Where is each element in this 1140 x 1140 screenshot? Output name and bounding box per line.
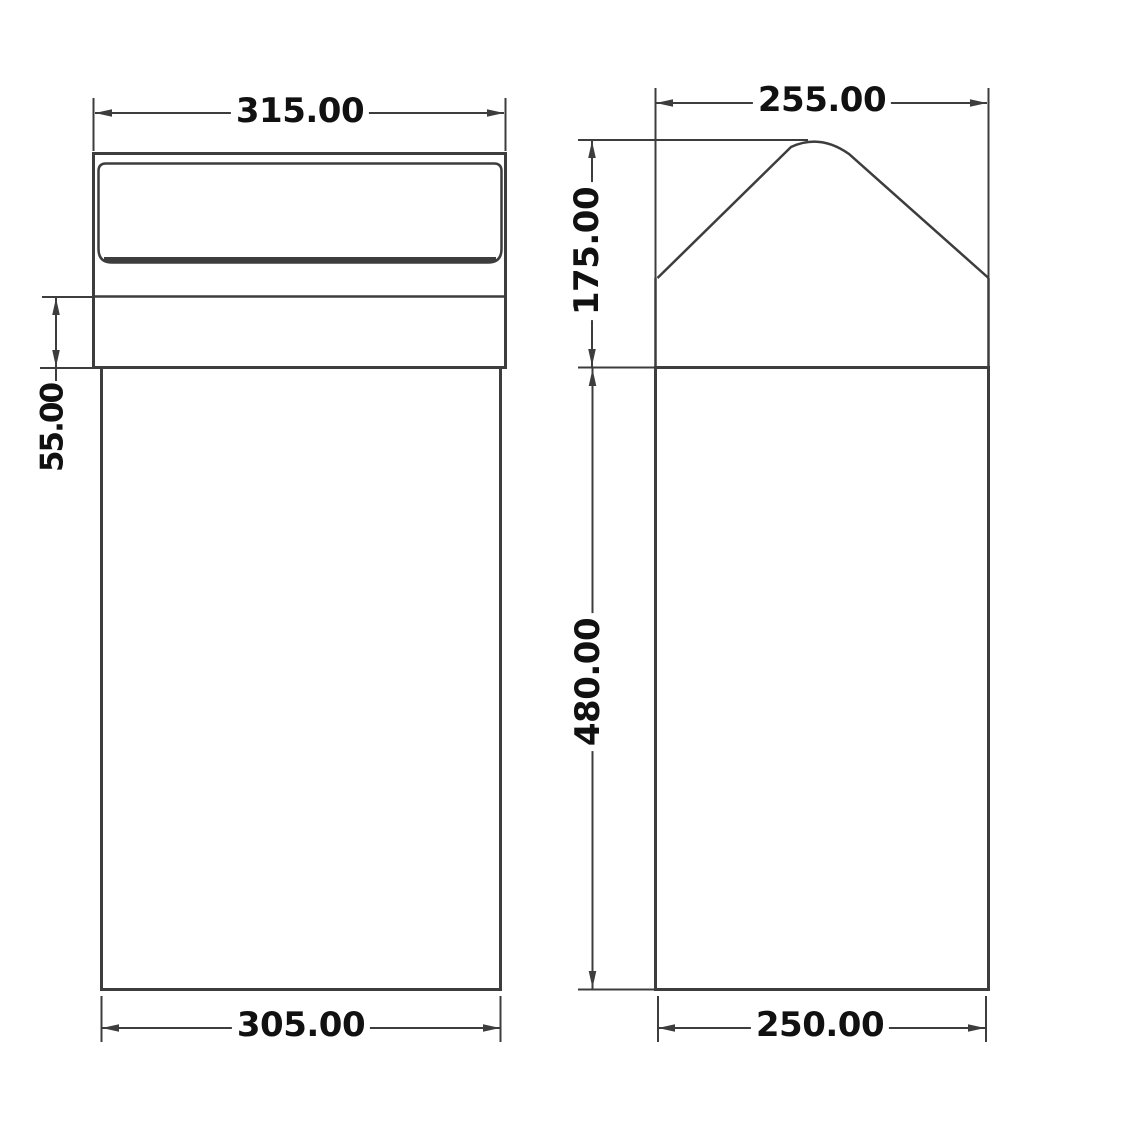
dim-label-side-top-width: 255.00 [753,83,891,119]
side-hood-outline [658,142,989,278]
side-body-outline [656,368,989,990]
extension-lines [40,88,989,1042]
drawing-linework [0,0,1140,1140]
side-view-outline [656,142,989,990]
dim-label-front-band-height: 55.00 [37,381,70,475]
dim-label-side-body-height: 480.00 [571,613,607,751]
dim-label-side-hood-height: 175.00 [570,182,606,320]
front-view-outline [94,154,506,990]
dim-label-front-bottom-width: 305.00 [232,1008,370,1044]
dimension-arrowheads [52,99,987,1032]
dimension-lines [56,103,987,1028]
dim-label-front-top-width: 315.00 [231,94,369,130]
technical-drawing-canvas: 315.00 55.00 305.00 255.00 175.00 480.00… [0,0,1140,1140]
front-body-outline [102,368,501,990]
dim-label-side-bottom-width: 250.00 [751,1008,889,1044]
front-flap-outline [99,164,502,263]
